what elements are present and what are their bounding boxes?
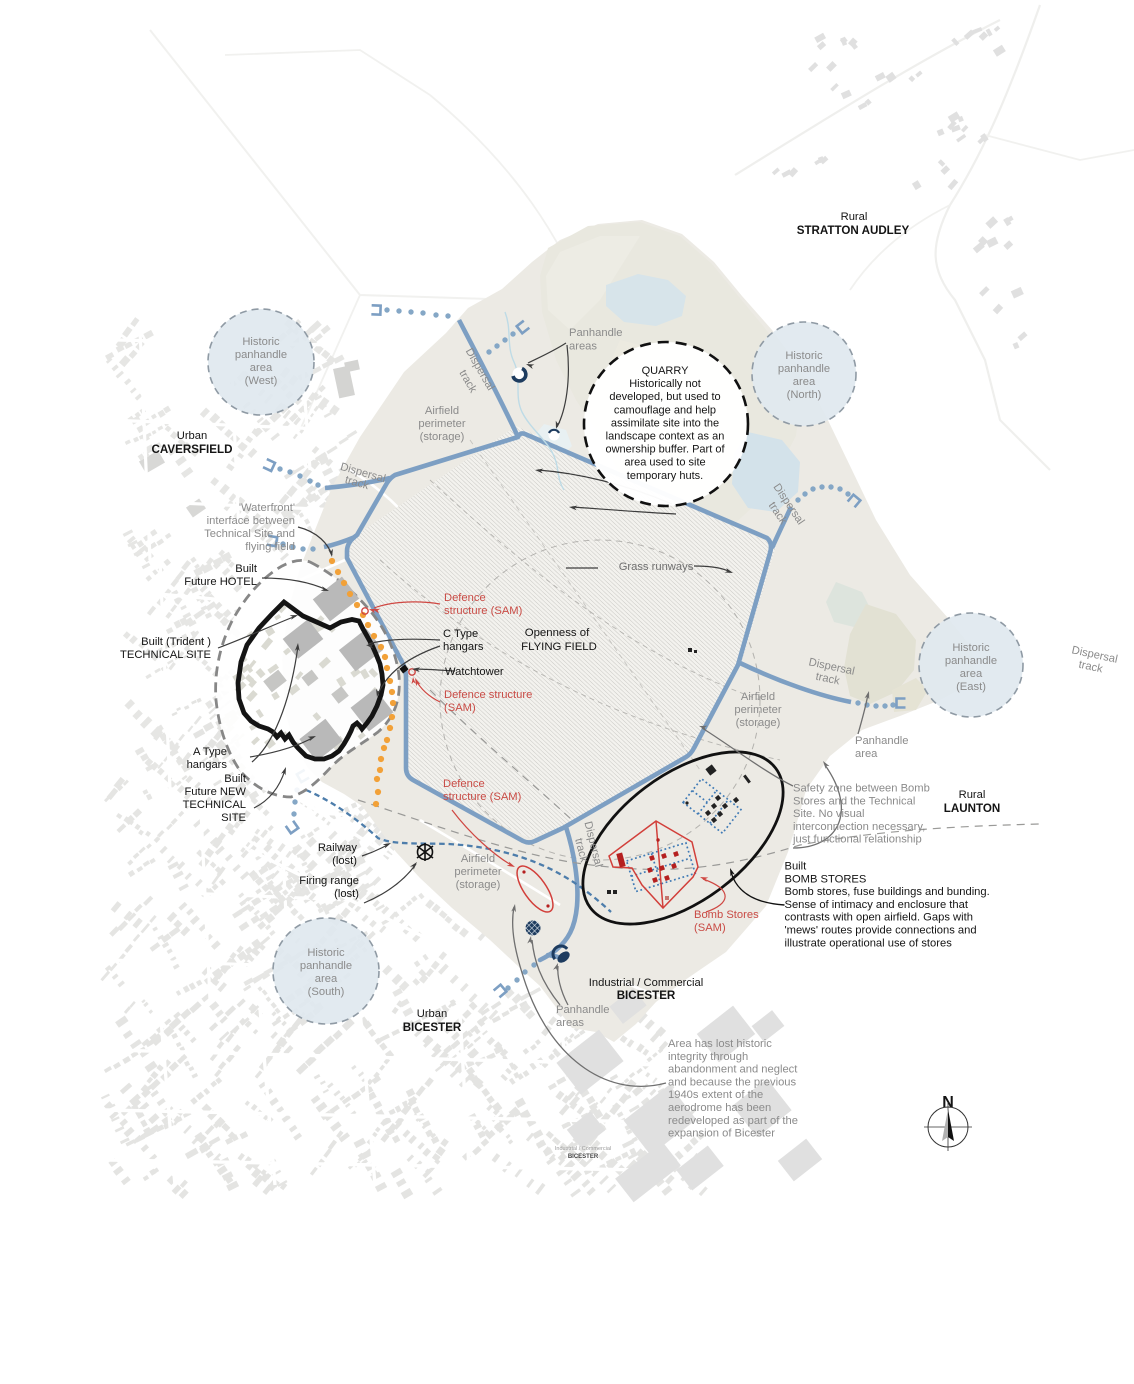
svg-text:area: area [250,362,273,374]
svg-text:(East): (East) [956,681,986,693]
svg-text:panhandle: panhandle [945,655,997,667]
svg-text:Historically not: Historically not [629,378,701,390]
svg-text:flying field: flying field [245,541,295,553]
svg-text:panhandle: panhandle [235,349,287,361]
svg-text:hangars: hangars [187,759,228,771]
svg-text:camouflage and help: camouflage and help [614,404,716,416]
svg-text:Rural: Rural [959,789,986,801]
svg-text:landscape context as an: landscape context as an [606,431,725,443]
svg-text:(West): (West) [245,375,278,387]
svg-text:interface between: interface between [207,515,295,527]
svg-text:Airfield: Airfield [461,853,495,865]
svg-text:integrity through: integrity through [668,1051,748,1063]
svg-text:(lost): (lost) [334,888,359,900]
svg-text:area: area [793,376,816,388]
svg-text:Sense of intimacy and enclosur: Sense of intimacy and enclosure that [785,899,969,911]
svg-text:temporary huts.: temporary huts. [627,470,703,482]
svg-text:CAVERSFIELD: CAVERSFIELD [152,443,233,456]
svg-text:Industrial / Commercial: Industrial / Commercial [589,977,703,989]
svg-text:structure (SAM): structure (SAM) [443,791,522,803]
svg-text:LAUNTON: LAUNTON [944,802,1000,815]
svg-text:Built (Trident ): Built (Trident ) [141,636,211,648]
svg-text:Airfield: Airfield [425,405,459,417]
svg-text:Firing range: Firing range [299,875,359,887]
svg-text:Site. No visual: Site. No visual [793,808,865,820]
svg-text:Defence: Defence [444,592,486,604]
svg-text:hangars: hangars [443,641,484,653]
svg-text:developed, but used to: developed, but used to [609,391,720,403]
svg-text:areas: areas [556,1017,584,1029]
svg-text:(lost): (lost) [332,855,357,867]
svg-text:interconnection necessary,: interconnection necessary, [793,821,925,833]
svg-text:Defence structure: Defence structure [444,689,532,701]
svg-text:Panhandle: Panhandle [556,1004,610,1016]
svg-text:BICESTER: BICESTER [617,989,676,1002]
svg-text:Watchtower: Watchtower [445,666,504,678]
svg-text:BICESTER: BICESTER [568,1154,599,1160]
svg-text:illustrate operational use of: illustrate operational use of stores [785,937,953,949]
svg-text:Future NEW: Future NEW [184,786,246,798]
svg-text:Rural: Rural [841,211,868,223]
svg-text:Urban: Urban [177,430,207,442]
svg-text:Safety zone between Bomb: Safety zone between Bomb [793,783,930,795]
svg-text:contrasts with open airfield.: contrasts with open airfield. Gaps with [785,912,973,924]
svg-text:Panhandle: Panhandle [569,327,623,339]
svg-text:Built: Built [785,861,808,873]
svg-text:FLYING FIELD: FLYING FIELD [521,641,597,653]
svg-text:Built: Built [235,563,258,575]
svg-text:SITE: SITE [221,812,246,824]
svg-text:Built: Built [224,773,247,785]
svg-text:Stores and the Technical: Stores and the Technical [793,795,915,807]
svg-text:Historic: Historic [785,350,823,362]
svg-text:panhandle: panhandle [300,960,352,972]
svg-text:Technical Site and: Technical Site and [204,528,295,540]
svg-text:assimilate site into the: assimilate site into the [611,417,719,429]
svg-text:'mews' routes provide connecti: 'mews' routes provide connections and [785,925,977,937]
svg-text:STRATTON AUDLEY: STRATTON AUDLEY [797,224,910,237]
svg-text:Bomb Stores: Bomb Stores [694,909,759,921]
svg-text:just functional relationship: just functional relationship [792,834,922,846]
svg-text:(North): (North) [787,389,822,401]
svg-text:(SAM): (SAM) [444,702,476,714]
svg-text:TECHNICAL SITE: TECHNICAL SITE [120,649,211,661]
svg-text:Panhandle: Panhandle [855,735,909,747]
svg-text:(storage): (storage) [736,717,781,729]
svg-text:area: area [855,748,878,760]
svg-text:C Type: C Type [443,628,478,640]
svg-text:N: N [942,1094,954,1111]
svg-text:perimeter: perimeter [418,418,466,430]
svg-text:Historic: Historic [307,947,345,959]
svg-text:BOMB STORES: BOMB STORES [785,873,867,885]
svg-text:Defence: Defence [443,778,485,790]
svg-text:1940s extent of the: 1940s extent of the [668,1089,763,1101]
svg-text:aerodrome has been: aerodrome has been [668,1102,771,1114]
svg-text:Industrial / Commercial: Industrial / Commercial [555,1146,611,1152]
svg-text:(storage): (storage) [456,879,501,891]
svg-text:area: area [315,973,338,985]
svg-text:(SAM): (SAM) [694,922,726,934]
svg-text:Railway: Railway [318,842,358,854]
svg-text:A Type: A Type [193,746,227,758]
svg-text:Grass runways: Grass runways [619,561,694,573]
svg-text:Airfield: Airfield [741,691,775,703]
svg-text:perimeter: perimeter [454,866,502,878]
svg-text:Future HOTEL: Future HOTEL [184,576,257,588]
svg-text:abandonment and neglect: abandonment and neglect [668,1064,798,1076]
svg-text:BICESTER: BICESTER [403,1021,462,1034]
svg-text:Urban: Urban [417,1008,447,1020]
svg-text:(storage): (storage) [420,431,465,443]
svg-text:Area has lost historic: Area has lost historic [668,1038,772,1050]
svg-text:area used to site: area used to site [624,457,705,469]
svg-text:'Waterfront': 'Waterfront' [239,502,295,514]
svg-text:panhandle: panhandle [778,363,830,375]
svg-text:redeveloped as part of the: redeveloped as part of the [668,1115,798,1127]
svg-text:area: area [960,668,983,680]
svg-text:and because the previous: and because the previous [668,1076,797,1088]
svg-text:expansion of Bicester: expansion of Bicester [668,1128,775,1140]
svg-text:Bomb stores, fuse buildings an: Bomb stores, fuse buildings and bunding. [785,886,990,898]
svg-text:perimeter: perimeter [734,704,782,716]
svg-text:Openness of: Openness of [525,627,590,639]
svg-text:Historic: Historic [242,336,280,348]
svg-text:areas: areas [569,341,597,353]
svg-text:Historic: Historic [952,642,990,654]
svg-text:(South): (South) [308,986,345,998]
svg-text:QUARRY: QUARRY [642,365,690,377]
svg-text:ownership buffer. Part of: ownership buffer. Part of [605,444,725,456]
svg-text:structure (SAM): structure (SAM) [444,605,523,617]
svg-text:TECHNICAL: TECHNICAL [183,799,246,811]
